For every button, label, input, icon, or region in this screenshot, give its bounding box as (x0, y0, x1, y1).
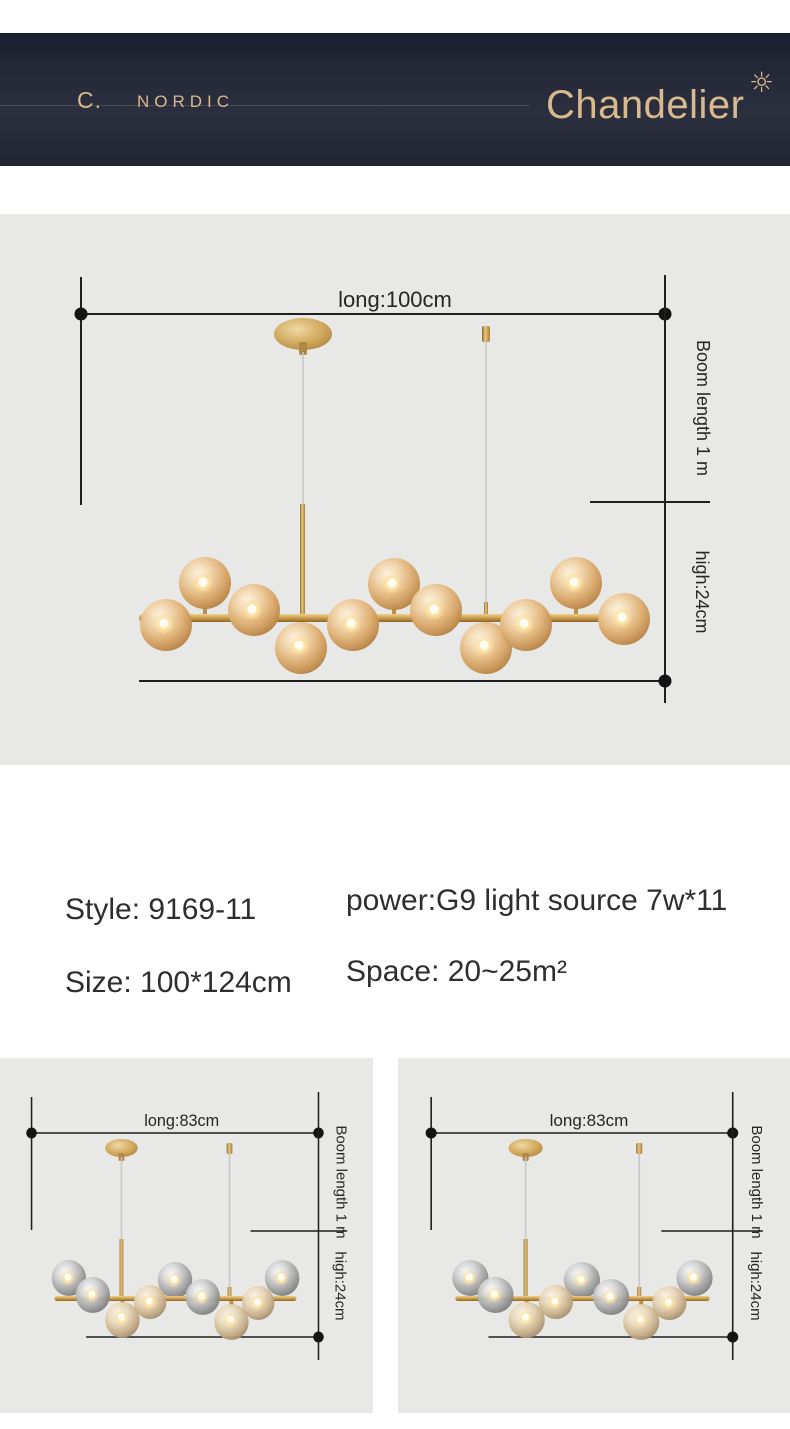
chandelier-illustration (52, 1139, 300, 1340)
stem-rod (300, 504, 305, 616)
wire-fitting (482, 326, 490, 342)
glass-globe (140, 599, 192, 651)
dimension-endpoint-dot (727, 1332, 738, 1343)
glass-globe (105, 1302, 139, 1338)
header: C. NORDIC Chandelier ☼ (0, 33, 790, 166)
spec-section: Style: 9169-11 Size: 100*124cm power:G9 … (0, 765, 790, 1058)
glass-globe (539, 1285, 573, 1319)
brand-name: NORDIC (137, 92, 234, 112)
product-detail-page: C. NORDIC Chandelier ☼ long:100cm Boom l… (0, 0, 790, 1429)
glass-globe (410, 584, 462, 636)
glass-globe (477, 1277, 513, 1313)
wire-fitting (636, 1143, 642, 1154)
glass-globe (134, 1285, 167, 1319)
wire-fitting (227, 1143, 233, 1154)
chandelier-illustration (139, 318, 650, 674)
dimension-endpoint-dot (426, 1128, 437, 1139)
sun-icon: ☼ (749, 66, 774, 99)
glass-globe (186, 1279, 220, 1315)
glass-globe (500, 599, 552, 651)
long-label: long:83cm (550, 1111, 629, 1130)
chandelier-logo: Chandelier (546, 83, 744, 128)
glass-globe (265, 1260, 299, 1296)
glass-globe (598, 593, 650, 645)
boom-length-label: Boom length 1 m (333, 1125, 349, 1238)
glass-globe (676, 1260, 712, 1296)
long-label: long:83cm (144, 1111, 219, 1130)
variant-dimension-diagram: long:83cm Boom length 1 m high:24cm (398, 1058, 790, 1413)
glass-globe (228, 584, 280, 636)
dimension-endpoint-dot (26, 1128, 37, 1139)
glass-globe (593, 1279, 629, 1315)
spec-style: Style: 9169-11 (65, 893, 256, 927)
main-dimension-diagram: long:100cm Boom length 1 m high:24cm (0, 214, 790, 765)
stem-rod (524, 1239, 528, 1298)
glass-globe (550, 557, 602, 609)
variant-panel-right: long:83cm Boom length 1 m high:24cm (398, 1058, 790, 1413)
high-label: high:24cm (692, 550, 712, 633)
boom-length-label: Boom length 1 m (748, 1125, 765, 1238)
chandelier-illustration (452, 1139, 712, 1340)
glass-globe (275, 622, 327, 674)
glass-globe (509, 1302, 545, 1338)
glass-globe (242, 1286, 275, 1320)
glass-globe (652, 1286, 686, 1320)
spec-space: Space: 20~25m² (346, 955, 567, 989)
main-product-panel: long:100cm Boom length 1 m high:24cm (0, 214, 790, 765)
brand-initial: C. (77, 87, 102, 114)
high-label: high:24cm (747, 1251, 764, 1320)
high-label: high:24cm (332, 1251, 348, 1320)
long-label: long:100cm (338, 287, 452, 312)
glass-globe (179, 557, 231, 609)
variant-dimension-diagram: long:83cm Boom length 1 m high:24cm (0, 1058, 373, 1413)
spec-power: power:G9 light source 7w*11 (346, 884, 727, 918)
boom-length-label: Boom length 1 m (693, 340, 713, 476)
dimension-endpoint-dot (659, 675, 672, 688)
glass-globe (327, 599, 379, 651)
glass-globe (76, 1277, 110, 1313)
variant-panel-left: long:83cm Boom length 1 m high:24cm (0, 1058, 373, 1413)
dimension-endpoint-dot (75, 308, 88, 321)
dimension-endpoint-dot (313, 1332, 324, 1343)
spec-size: Size: 100*124cm (65, 966, 292, 1000)
stem-rod (120, 1239, 124, 1298)
